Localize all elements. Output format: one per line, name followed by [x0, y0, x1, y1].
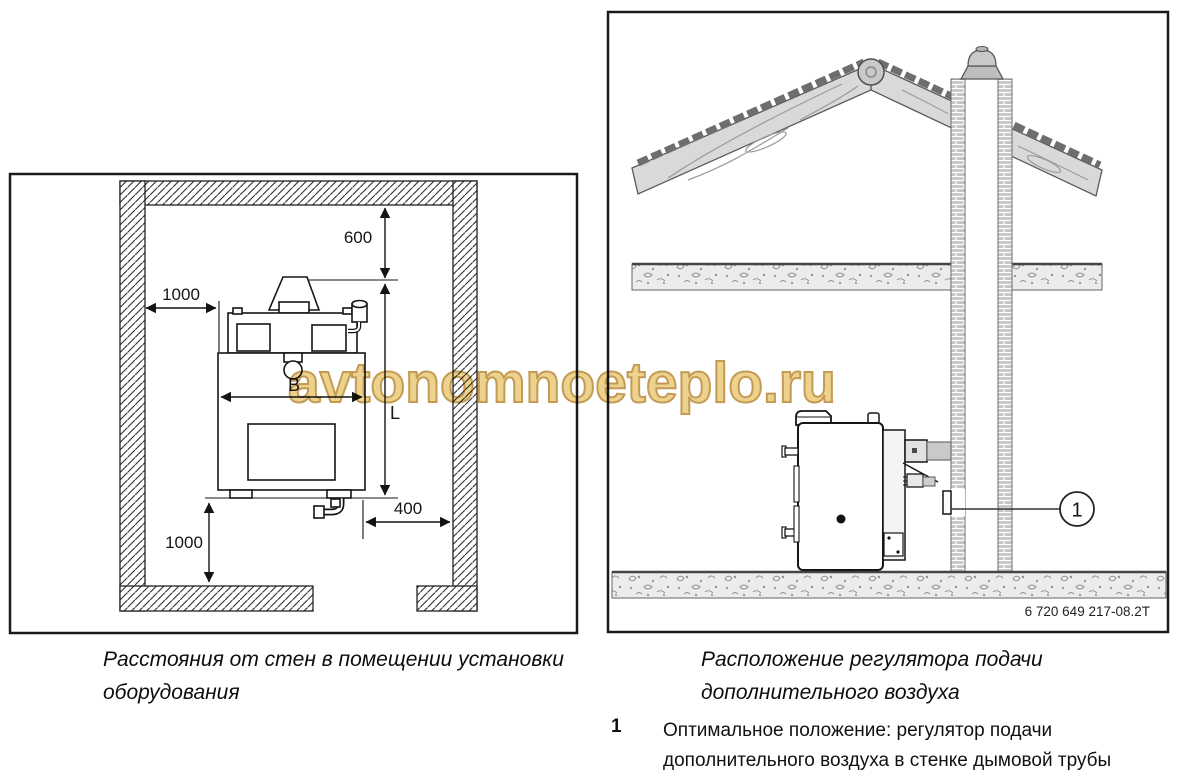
boiler-foot-right [327, 490, 351, 498]
boiler-shell [798, 423, 883, 570]
callout-number: 1 [1071, 500, 1082, 522]
legend-item-text: Оптимальное положение: регулятор подачи … [663, 716, 1173, 776]
door-edge-upper [794, 466, 799, 502]
flue-outlet-hole [912, 448, 917, 453]
dim-1000-bottom-label: 1000 [165, 533, 203, 552]
dim-600-label: 600 [344, 228, 372, 247]
right-figure-panel: 1 6 720 649 217-08.2T [608, 12, 1168, 632]
manual-page: 600 L 1000 B 400 1 [0, 0, 1180, 780]
dim-1000-top-label: 1000 [162, 285, 200, 304]
legend-item-number: 1 [611, 716, 622, 738]
right-caption-line1: Расположение регулятора подачи [701, 643, 1171, 676]
drawing-code: 6 720 649 217-08.2T [1025, 604, 1150, 619]
floor-slab [612, 572, 1166, 598]
drain-bracket [331, 499, 340, 507]
rear-tab-right [343, 308, 352, 314]
left-figure-caption: Расстояния от стен в помещении установки… [103, 643, 583, 709]
attic-slab [632, 264, 1102, 290]
chimney-cap-nub [976, 47, 988, 52]
wall-bottom-right [417, 586, 477, 611]
flue-duct [927, 442, 951, 460]
door-edge-lower [794, 506, 799, 542]
left-caption-line1: Расстояния от стен в помещении установки [103, 643, 583, 676]
right-figure-caption: Расположение регулятора подачи дополните… [701, 643, 1171, 709]
flue-collar [279, 302, 309, 313]
left-caption-line2: оборудования [103, 676, 583, 709]
ridge-finial [858, 59, 884, 85]
rear-opening-left [237, 324, 270, 351]
air-regulator [943, 491, 951, 514]
wall-top [120, 181, 477, 205]
wall-left [120, 181, 145, 611]
back-access-plate [884, 533, 903, 556]
boiler-door [248, 424, 335, 480]
rear-tab-left [233, 308, 242, 314]
pipe-stub-top [352, 301, 367, 308]
dim-400-label: 400 [394, 499, 422, 518]
boiler-drain-dot [837, 515, 846, 524]
drain-fitting [314, 506, 324, 518]
rear-opening-right [312, 325, 346, 351]
chimney-wall-right [998, 79, 1012, 572]
legend-text-line2: дополнительного воздуха в стенке дымовой… [663, 746, 1173, 776]
draft-fitting-block [923, 477, 935, 486]
hinge-top [785, 448, 798, 455]
chimney-cap-dome [968, 50, 996, 66]
boiler-foot-left [230, 490, 252, 498]
plate-bolt-1 [887, 536, 890, 539]
site-watermark: avtonomnoeteplo.ru [288, 350, 836, 416]
top-knob [868, 413, 879, 423]
plate-bolt-2 [896, 550, 899, 553]
draft-fitting [907, 474, 923, 487]
legend-text-line1: Оптимальное положение: регулятор подачи [663, 716, 1173, 746]
right-caption-line2: дополнительного воздуха [701, 676, 1171, 709]
wall-bottom-left [120, 586, 313, 611]
chimney-cap-skirt [961, 66, 1003, 79]
regulator-gap [951, 489, 965, 516]
